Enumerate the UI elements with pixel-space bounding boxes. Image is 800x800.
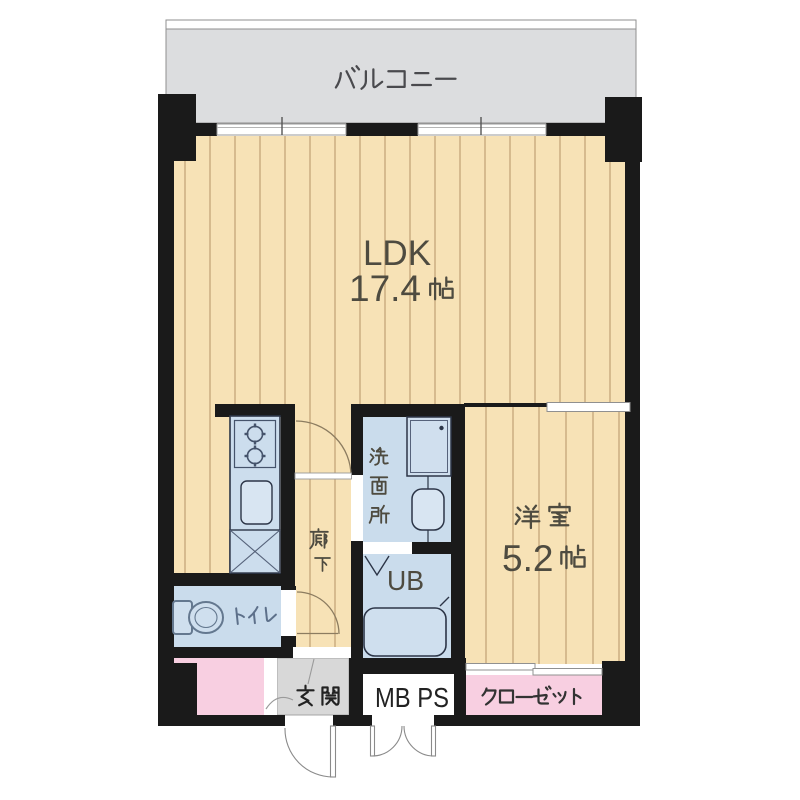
svg-text:UB: UB (387, 565, 424, 596)
svg-text:17.4: 17.4 (349, 268, 421, 309)
svg-text:5.2: 5.2 (502, 538, 553, 579)
svg-text:MB PS: MB PS (375, 682, 449, 713)
